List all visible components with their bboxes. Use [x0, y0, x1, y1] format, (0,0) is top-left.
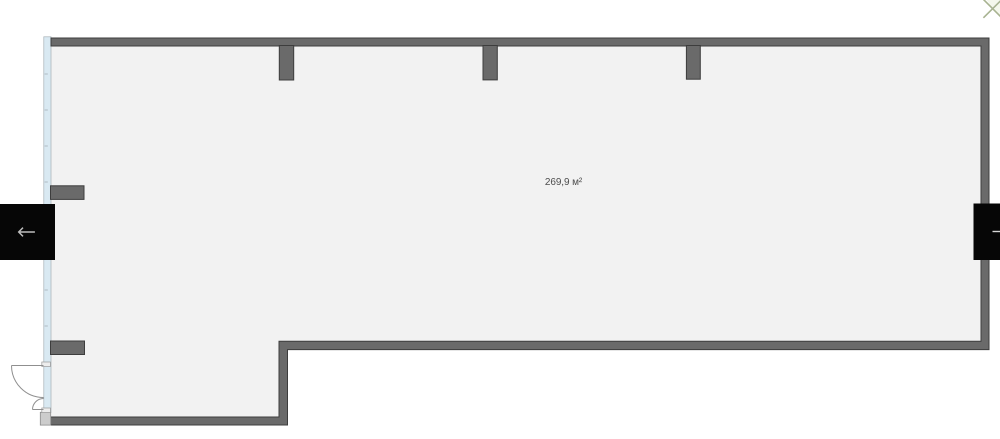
svg-text:269,9 м²: 269,9 м²	[545, 177, 583, 188]
